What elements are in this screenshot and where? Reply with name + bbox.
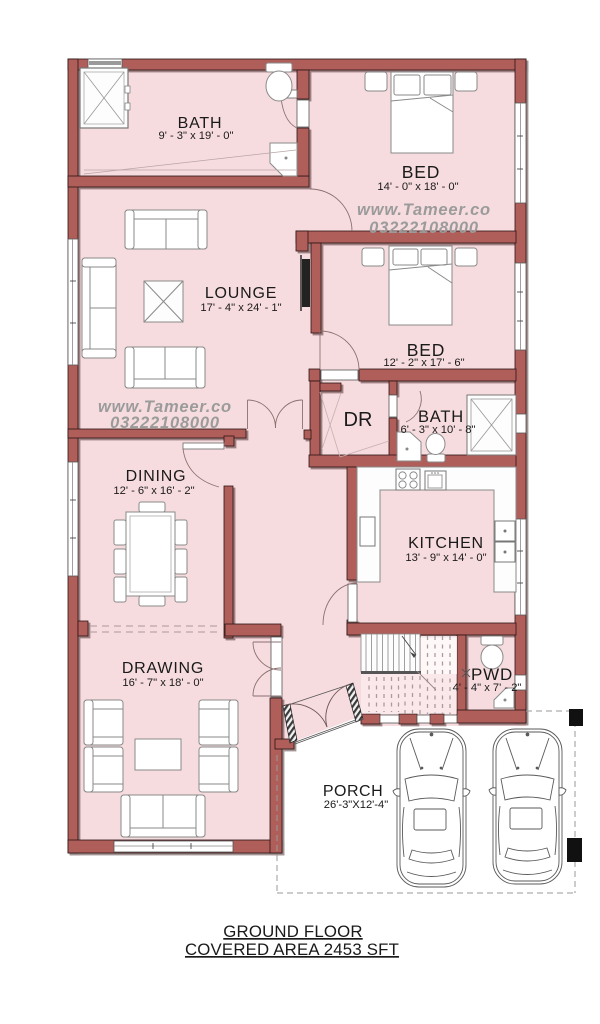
svg-text:13' - 9" x 14' - 0": 13' - 9" x 14' - 0" [405,552,486,564]
svg-text:9' - 3" x 19' - 0": 9' - 3" x 19' - 0" [158,130,233,142]
svg-text:DRAWING: DRAWING [122,660,204,677]
svg-text:LOUNGE: LOUNGE [205,285,277,302]
svg-text:GROUND FLOOR: GROUND FLOOR [223,922,362,941]
svg-text:26'-3"X12'-4": 26'-3"X12'-4" [324,799,388,811]
svg-text:www.Tameer.co: www.Tameer.co [357,201,491,219]
svg-text:12' - 6" x 16' - 2": 12' - 6" x 16' - 2" [113,485,194,497]
svg-text:03222108000: 03222108000 [110,414,220,432]
svg-text:PORCH: PORCH [323,783,383,800]
svg-text:KITCHEN: KITCHEN [408,535,484,552]
svg-text:DINING: DINING [126,468,187,485]
svg-text:16' - 7" x 18' - 0": 16' - 7" x 18' - 0" [122,677,203,689]
svg-text:17' - 4" x 24' - 1": 17' - 4" x 24' - 1" [200,302,281,314]
svg-text:12' - 2" x 17' - 6": 12' - 2" x 17' - 6" [383,357,464,369]
svg-text:DR: DR [344,409,373,431]
svg-text:4' - 4" x 7' - 2": 4' - 4" x 7' - 2" [453,682,522,694]
svg-text:6' - 3" x 10' - 8": 6' - 3" x 10' - 8" [400,424,475,436]
svg-text:14' - 0" x 18' - 0": 14' - 0" x 18' - 0" [377,181,458,193]
svg-text:COVERED AREA 2453 SFT: COVERED AREA 2453 SFT [185,940,399,959]
svg-text:BED: BED [402,162,440,182]
svg-text:03222108000: 03222108000 [369,219,479,237]
